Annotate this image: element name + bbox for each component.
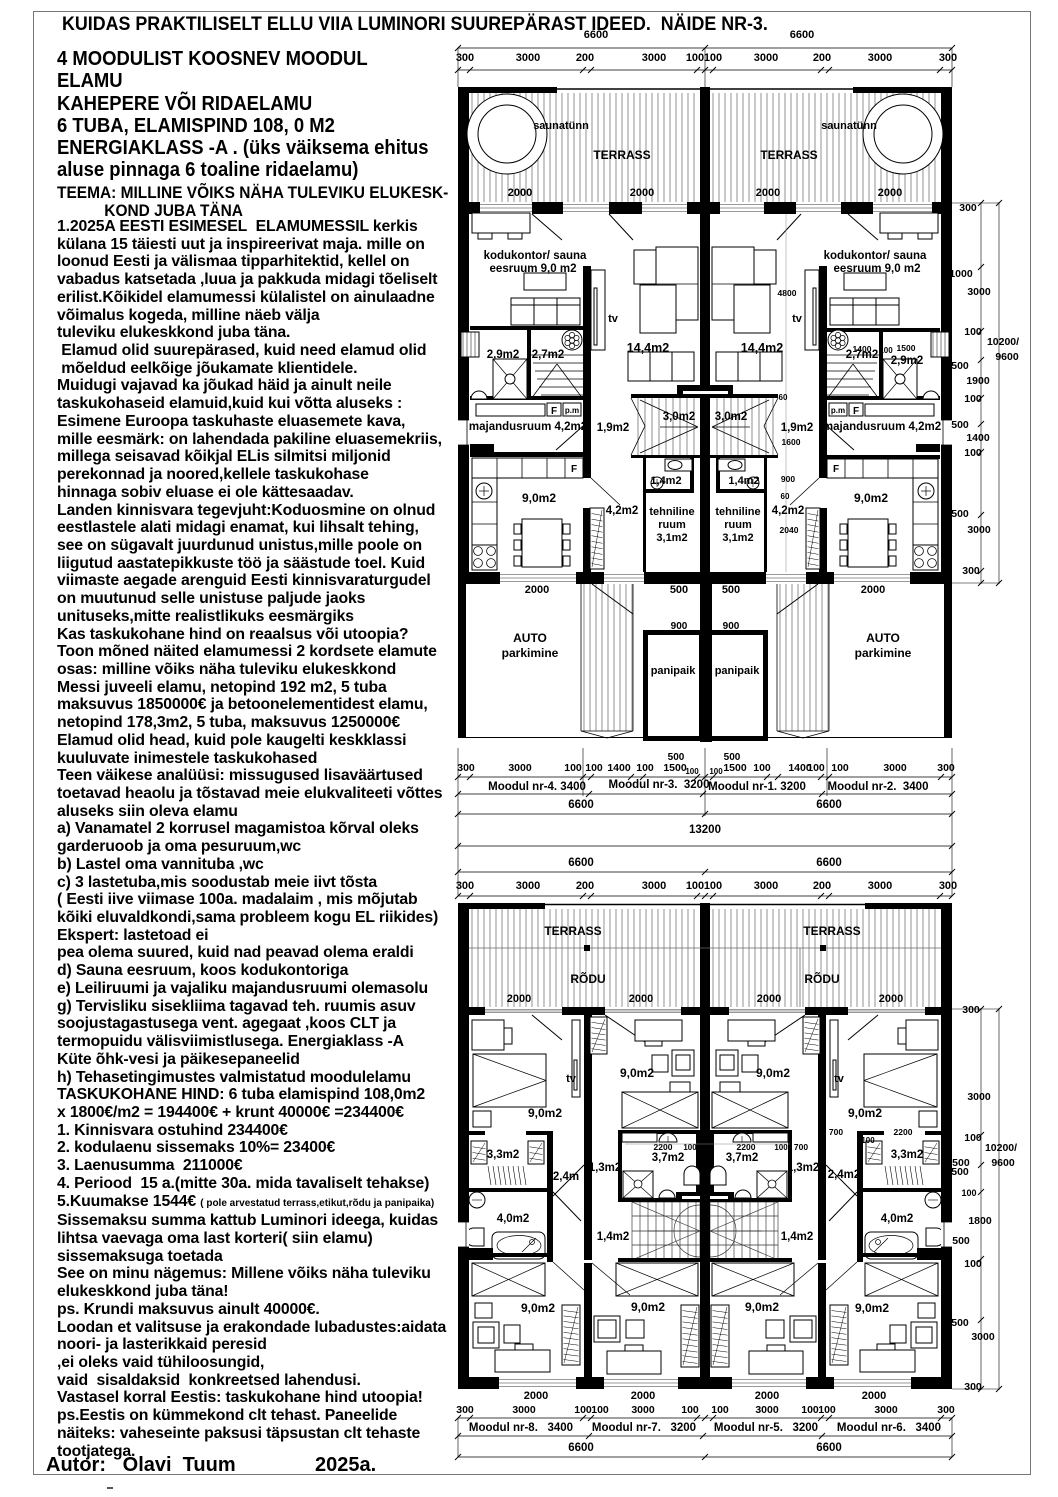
svg-text:3,7m2: 3,7m2 <box>726 1152 759 1164</box>
svg-text:6600: 6600 <box>568 1442 594 1454</box>
svg-text:100: 100 <box>964 393 982 405</box>
svg-text:6600: 6600 <box>568 857 594 869</box>
svg-text:2200: 2200 <box>894 1127 913 1137</box>
svg-text:2,4m2: 2,4m2 <box>828 1169 861 1181</box>
svg-text:eesruum 9,0 m2: eesruum 9,0 m2 <box>834 263 921 275</box>
svg-text:10200/: 10200/ <box>985 1142 1017 1154</box>
svg-text:100: 100 <box>831 762 849 774</box>
svg-text:100: 100 <box>711 1404 729 1416</box>
svg-text:200: 200 <box>576 880 594 892</box>
svg-text:3,0m2: 3,0m2 <box>663 411 696 423</box>
svg-text:200: 200 <box>813 880 831 892</box>
svg-text:F: F <box>853 406 859 417</box>
svg-text:4,2m2: 4,2m2 <box>772 505 805 517</box>
svg-text:100: 100 <box>704 880 722 892</box>
svg-text:500: 500 <box>951 360 969 372</box>
svg-text:6600: 6600 <box>816 857 842 869</box>
svg-text:3,3m2: 3,3m2 <box>487 1149 520 1161</box>
svg-text:9,0m2: 9,0m2 <box>521 1301 555 1315</box>
svg-text:100: 100 <box>685 767 699 776</box>
svg-text:kodukontor/ sauna: kodukontor/ sauna <box>484 250 587 262</box>
svg-text:14,4m2: 14,4m2 <box>627 341 669 355</box>
svg-text:2000: 2000 <box>755 1390 779 1402</box>
svg-text:2,9m2: 2,9m2 <box>487 349 520 361</box>
svg-text:100: 100 <box>774 1143 788 1152</box>
svg-text:4,0m2: 4,0m2 <box>497 1213 530 1225</box>
svg-text:700: 700 <box>794 1142 808 1152</box>
svg-text:2040: 2040 <box>780 525 799 535</box>
svg-text:60: 60 <box>779 393 788 402</box>
svg-text:100: 100 <box>964 1132 982 1144</box>
svg-text:300: 300 <box>456 1404 474 1416</box>
svg-text:AUTO: AUTO <box>513 631 547 645</box>
svg-text:2000: 2000 <box>861 584 885 596</box>
svg-text:1400: 1400 <box>853 344 872 354</box>
svg-text:3000: 3000 <box>516 880 540 892</box>
svg-text:1,4m2: 1,4m2 <box>781 1231 814 1243</box>
svg-text:ruum: ruum <box>658 519 686 531</box>
svg-text:1,3m2: 1,3m2 <box>589 1162 622 1174</box>
svg-text:TERRASS: TERRASS <box>593 148 650 162</box>
svg-text:60: 60 <box>781 492 790 501</box>
svg-text:Moodul nr-8. 3400: Moodul nr-8. 3400 <box>469 1422 573 1434</box>
svg-text:panipaik: panipaik <box>651 665 697 677</box>
svg-text:300: 300 <box>937 1404 955 1416</box>
svg-text:3,0m2: 3,0m2 <box>715 411 748 423</box>
svg-text:2200: 2200 <box>737 1142 756 1152</box>
svg-text:tv: tv <box>792 313 803 325</box>
svg-text:2000: 2000 <box>879 993 903 1005</box>
svg-text:Moodul nr-2. 3400: Moodul nr-2. 3400 <box>828 781 929 793</box>
svg-text:tehniline: tehniline <box>649 506 694 518</box>
svg-text:2000: 2000 <box>862 1390 886 1402</box>
svg-text:200: 200 <box>813 52 831 64</box>
svg-text:2000: 2000 <box>524 1390 548 1402</box>
svg-text:TERRASS: TERRASS <box>544 924 601 938</box>
svg-text:Moodul nr-4. 3400: Moodul nr-4. 3400 <box>488 781 586 793</box>
svg-text:9,0m2: 9,0m2 <box>631 1300 665 1314</box>
svg-text:3000: 3000 <box>868 880 892 892</box>
svg-text:tv: tv <box>608 313 619 325</box>
svg-text:3000: 3000 <box>754 52 778 64</box>
svg-text:parkimine: parkimine <box>855 646 912 660</box>
svg-text:3000: 3000 <box>516 52 540 64</box>
svg-text:200: 200 <box>576 52 594 64</box>
svg-text:eesruum 9,0 m2: eesruum 9,0 m2 <box>490 263 577 275</box>
svg-text:900: 900 <box>723 621 740 632</box>
svg-text:1400: 1400 <box>966 432 990 444</box>
svg-text:4,2m2: 4,2m2 <box>606 505 639 517</box>
svg-text:AUTO: AUTO <box>866 631 900 645</box>
svg-text:panipaik: panipaik <box>715 665 761 677</box>
svg-text:10200/: 10200/ <box>987 336 1019 348</box>
svg-text:3,7m2: 3,7m2 <box>652 1152 685 1164</box>
svg-text:3000: 3000 <box>883 762 907 774</box>
svg-text:300: 300 <box>962 1004 980 1016</box>
svg-text:F: F <box>833 464 839 475</box>
svg-text:3000: 3000 <box>631 1404 655 1416</box>
svg-text:2000: 2000 <box>629 993 653 1005</box>
svg-text:3000: 3000 <box>754 880 778 892</box>
svg-text:100: 100 <box>964 447 982 459</box>
svg-text:majandusruum 4,2m2: majandusruum 4,2m2 <box>823 421 941 433</box>
svg-text:6600: 6600 <box>816 799 842 811</box>
svg-text:6600: 6600 <box>584 29 608 41</box>
svg-text:900: 900 <box>671 621 688 632</box>
svg-text:2000: 2000 <box>525 584 549 596</box>
svg-text:saunatünn: saunatünn <box>533 120 589 132</box>
svg-text:1,4m2: 1,4m2 <box>728 475 759 487</box>
svg-text:TERRASS: TERRASS <box>760 148 817 162</box>
svg-text:700: 700 <box>829 1127 843 1137</box>
svg-text:F: F <box>571 464 577 475</box>
svg-text:parkimine: parkimine <box>502 646 559 660</box>
svg-text:2000: 2000 <box>757 993 781 1005</box>
svg-text:100: 100 <box>709 767 723 776</box>
svg-text:1,9m2: 1,9m2 <box>597 422 630 434</box>
svg-text:Moodul nr-7. 3200: Moodul nr-7. 3200 <box>592 1422 696 1434</box>
svg-text:2000: 2000 <box>630 187 654 199</box>
svg-text:3,1m2: 3,1m2 <box>656 532 687 544</box>
svg-text:3000: 3000 <box>868 52 892 64</box>
svg-text:9,0m2: 9,0m2 <box>848 1106 882 1120</box>
svg-text:1600: 1600 <box>782 437 801 447</box>
svg-text:100: 100 <box>704 52 722 64</box>
svg-text:1000: 1000 <box>949 268 973 280</box>
svg-text:F: F <box>551 406 557 417</box>
svg-text:100: 100 <box>681 1404 699 1416</box>
svg-text:1,4m2: 1,4m2 <box>597 1231 630 1243</box>
svg-text:2000: 2000 <box>508 187 532 199</box>
svg-text:13200: 13200 <box>689 824 721 836</box>
svg-text:3,3m2: 3,3m2 <box>891 1149 924 1161</box>
svg-text:300: 300 <box>964 1381 982 1393</box>
svg-text:Moodul nr-3. 3200: Moodul nr-3. 3200 <box>609 779 710 791</box>
svg-text:1400: 1400 <box>607 762 631 774</box>
svg-text:3,1m2: 3,1m2 <box>722 532 753 544</box>
svg-text:100: 100 <box>686 880 704 892</box>
svg-text:100: 100 <box>686 52 704 64</box>
svg-text:300: 300 <box>939 52 957 64</box>
svg-text:9,0m2: 9,0m2 <box>528 1106 562 1120</box>
svg-text:3000: 3000 <box>755 1404 779 1416</box>
svg-text:500: 500 <box>670 584 688 596</box>
svg-text:Moodul nr-5. 3200: Moodul nr-5. 3200 <box>714 1422 818 1434</box>
svg-text:saunatünn: saunatünn <box>821 120 877 132</box>
svg-text:2,9m2: 2,9m2 <box>891 355 924 367</box>
svg-text:1500: 1500 <box>723 762 747 774</box>
svg-text:1900: 1900 <box>966 375 990 387</box>
svg-text:500: 500 <box>952 1235 970 1247</box>
svg-text:6600: 6600 <box>790 29 814 41</box>
svg-text:100: 100 <box>818 1404 836 1416</box>
svg-text:3000: 3000 <box>967 286 991 298</box>
svg-text:9,0m2: 9,0m2 <box>745 1300 779 1314</box>
svg-text:100: 100 <box>753 762 771 774</box>
svg-text:9600: 9600 <box>995 351 1019 363</box>
svg-text:1500: 1500 <box>663 762 687 774</box>
svg-text:2000: 2000 <box>631 1390 655 1402</box>
svg-text:100: 100 <box>636 762 654 774</box>
svg-text:14,4m2: 14,4m2 <box>741 341 783 355</box>
svg-text:300: 300 <box>962 565 980 577</box>
svg-text:3000: 3000 <box>642 52 666 64</box>
svg-text:tehniline: tehniline <box>715 506 760 518</box>
svg-text:3000: 3000 <box>967 524 991 536</box>
svg-text:9600: 9600 <box>991 1157 1015 1169</box>
svg-text:1,4m2: 1,4m2 <box>650 475 681 487</box>
svg-text:9,0m2: 9,0m2 <box>620 1066 654 1080</box>
svg-text:100: 100 <box>964 326 982 338</box>
svg-text:3000: 3000 <box>512 1404 536 1416</box>
svg-text:4800: 4800 <box>778 288 797 298</box>
svg-text:100: 100 <box>964 1258 982 1270</box>
svg-text:100: 100 <box>861 1136 875 1145</box>
svg-text:9,0m2: 9,0m2 <box>854 491 888 505</box>
svg-text:300: 300 <box>456 880 474 892</box>
svg-text:1500: 1500 <box>897 343 916 353</box>
svg-text:3000: 3000 <box>874 1404 898 1416</box>
svg-text:100: 100 <box>801 1404 819 1416</box>
svg-text:2000: 2000 <box>756 187 780 199</box>
svg-text:3000: 3000 <box>967 1091 991 1103</box>
svg-text:RÕDU: RÕDU <box>804 971 839 986</box>
svg-text:TERRASS: TERRASS <box>803 924 860 938</box>
svg-text:Moodul nr-6. 3400: Moodul nr-6. 3400 <box>837 1422 941 1434</box>
svg-text:300: 300 <box>457 762 475 774</box>
svg-text:Moodul nr-1. 3200: Moodul nr-1. 3200 <box>708 781 806 793</box>
svg-text:500: 500 <box>951 508 969 520</box>
svg-text:2200: 2200 <box>654 1142 673 1152</box>
svg-text:4,0m2: 4,0m2 <box>881 1213 914 1225</box>
svg-text:900: 900 <box>781 474 795 484</box>
svg-text:p.m: p.m <box>831 406 845 415</box>
svg-text:100: 100 <box>564 762 582 774</box>
svg-text:500: 500 <box>722 584 740 596</box>
svg-text:100: 100 <box>591 1404 609 1416</box>
svg-text:500: 500 <box>951 419 969 431</box>
svg-text:2000: 2000 <box>507 993 531 1005</box>
svg-text:6600: 6600 <box>816 1442 842 1454</box>
svg-text:100: 100 <box>683 1143 697 1152</box>
svg-text:RÕDU: RÕDU <box>570 971 605 986</box>
svg-text:2,4m: 2,4m <box>553 1171 579 1183</box>
svg-text:100: 100 <box>879 346 893 355</box>
svg-text:ruum: ruum <box>724 519 752 531</box>
svg-text:300: 300 <box>456 52 474 64</box>
svg-text:100: 100 <box>961 1188 976 1198</box>
svg-text:majandusruum 4,2m2: majandusruum 4,2m2 <box>469 421 587 433</box>
svg-text:100: 100 <box>585 762 603 774</box>
svg-text:500: 500 <box>951 1317 969 1329</box>
svg-text:100: 100 <box>574 1404 592 1416</box>
svg-text:1800: 1800 <box>968 1215 992 1227</box>
svg-text:p.m: p.m <box>565 406 579 415</box>
svg-text:3000: 3000 <box>508 762 532 774</box>
svg-text:300: 300 <box>959 202 977 214</box>
svg-text:9,0m2: 9,0m2 <box>756 1066 790 1080</box>
svg-text:2000: 2000 <box>878 187 902 199</box>
svg-text:9,0m2: 9,0m2 <box>855 1301 889 1315</box>
svg-text:3000: 3000 <box>642 880 666 892</box>
svg-text:300: 300 <box>939 880 957 892</box>
svg-text:100: 100 <box>807 762 825 774</box>
svg-text:kodukontor/ sauna: kodukontor/ sauna <box>824 250 927 262</box>
svg-text:3000: 3000 <box>971 1331 995 1343</box>
svg-text:1,9m2: 1,9m2 <box>781 422 814 434</box>
svg-text:500: 500 <box>951 1166 969 1178</box>
svg-text:tv: tv <box>834 1073 845 1085</box>
svg-text:tv: tv <box>566 1073 577 1085</box>
svg-text:9,0m2: 9,0m2 <box>522 491 556 505</box>
svg-text:6600: 6600 <box>568 799 594 811</box>
